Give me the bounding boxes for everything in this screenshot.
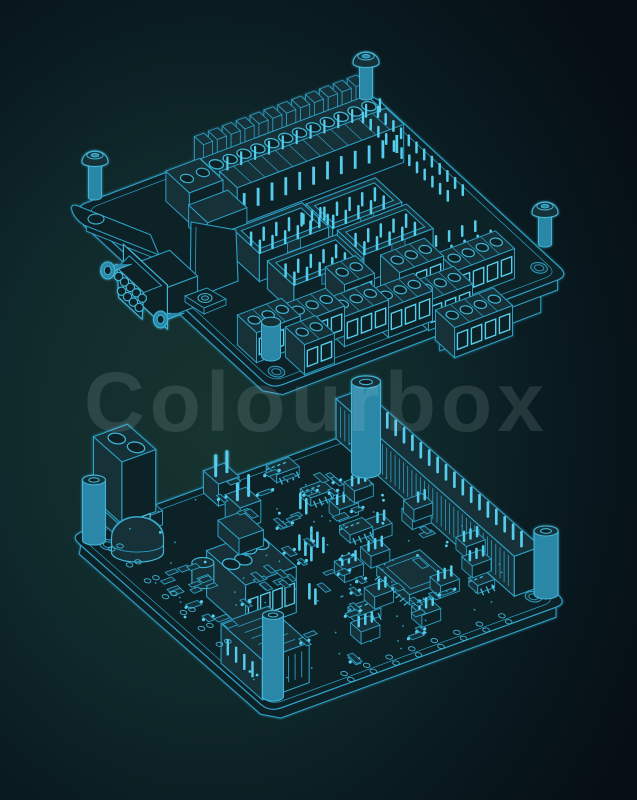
svg-text:Colourbox: Colourbox (84, 355, 549, 449)
